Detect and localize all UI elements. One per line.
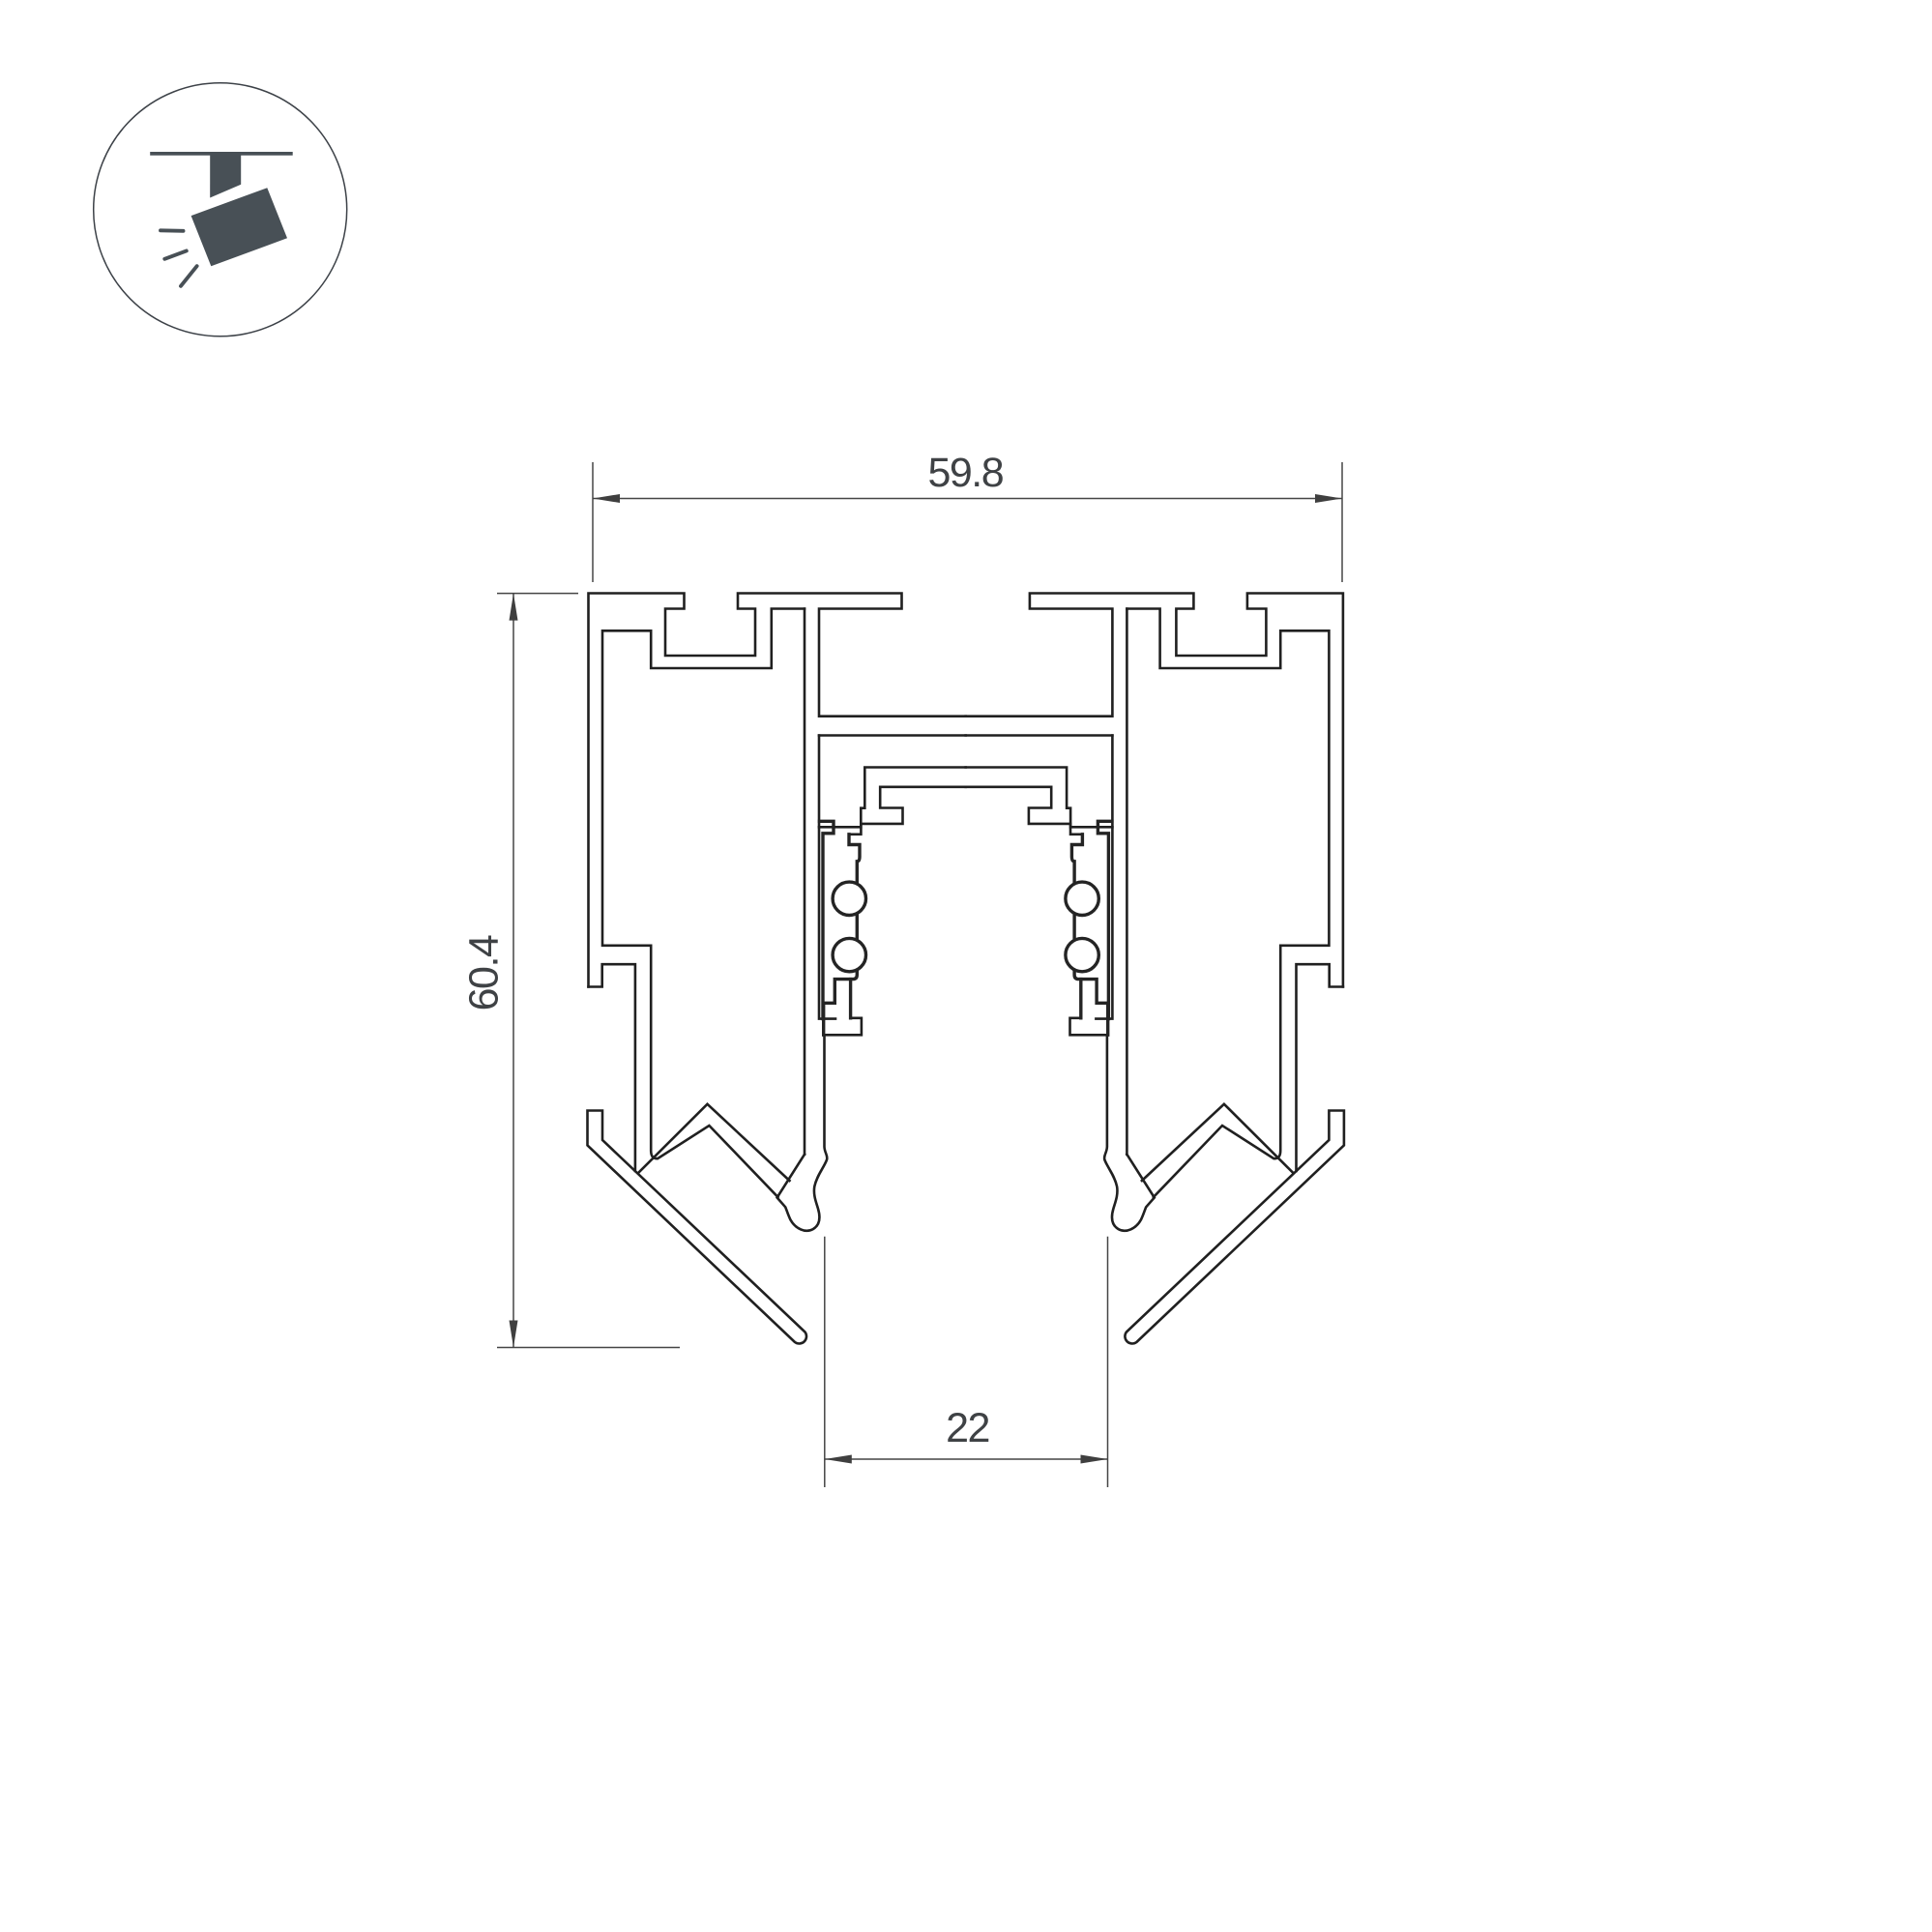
svg-text:60.4: 60.4 [461, 935, 508, 1010]
svg-text:59.8: 59.8 [927, 450, 1003, 496]
svg-text:22: 22 [946, 1405, 989, 1451]
